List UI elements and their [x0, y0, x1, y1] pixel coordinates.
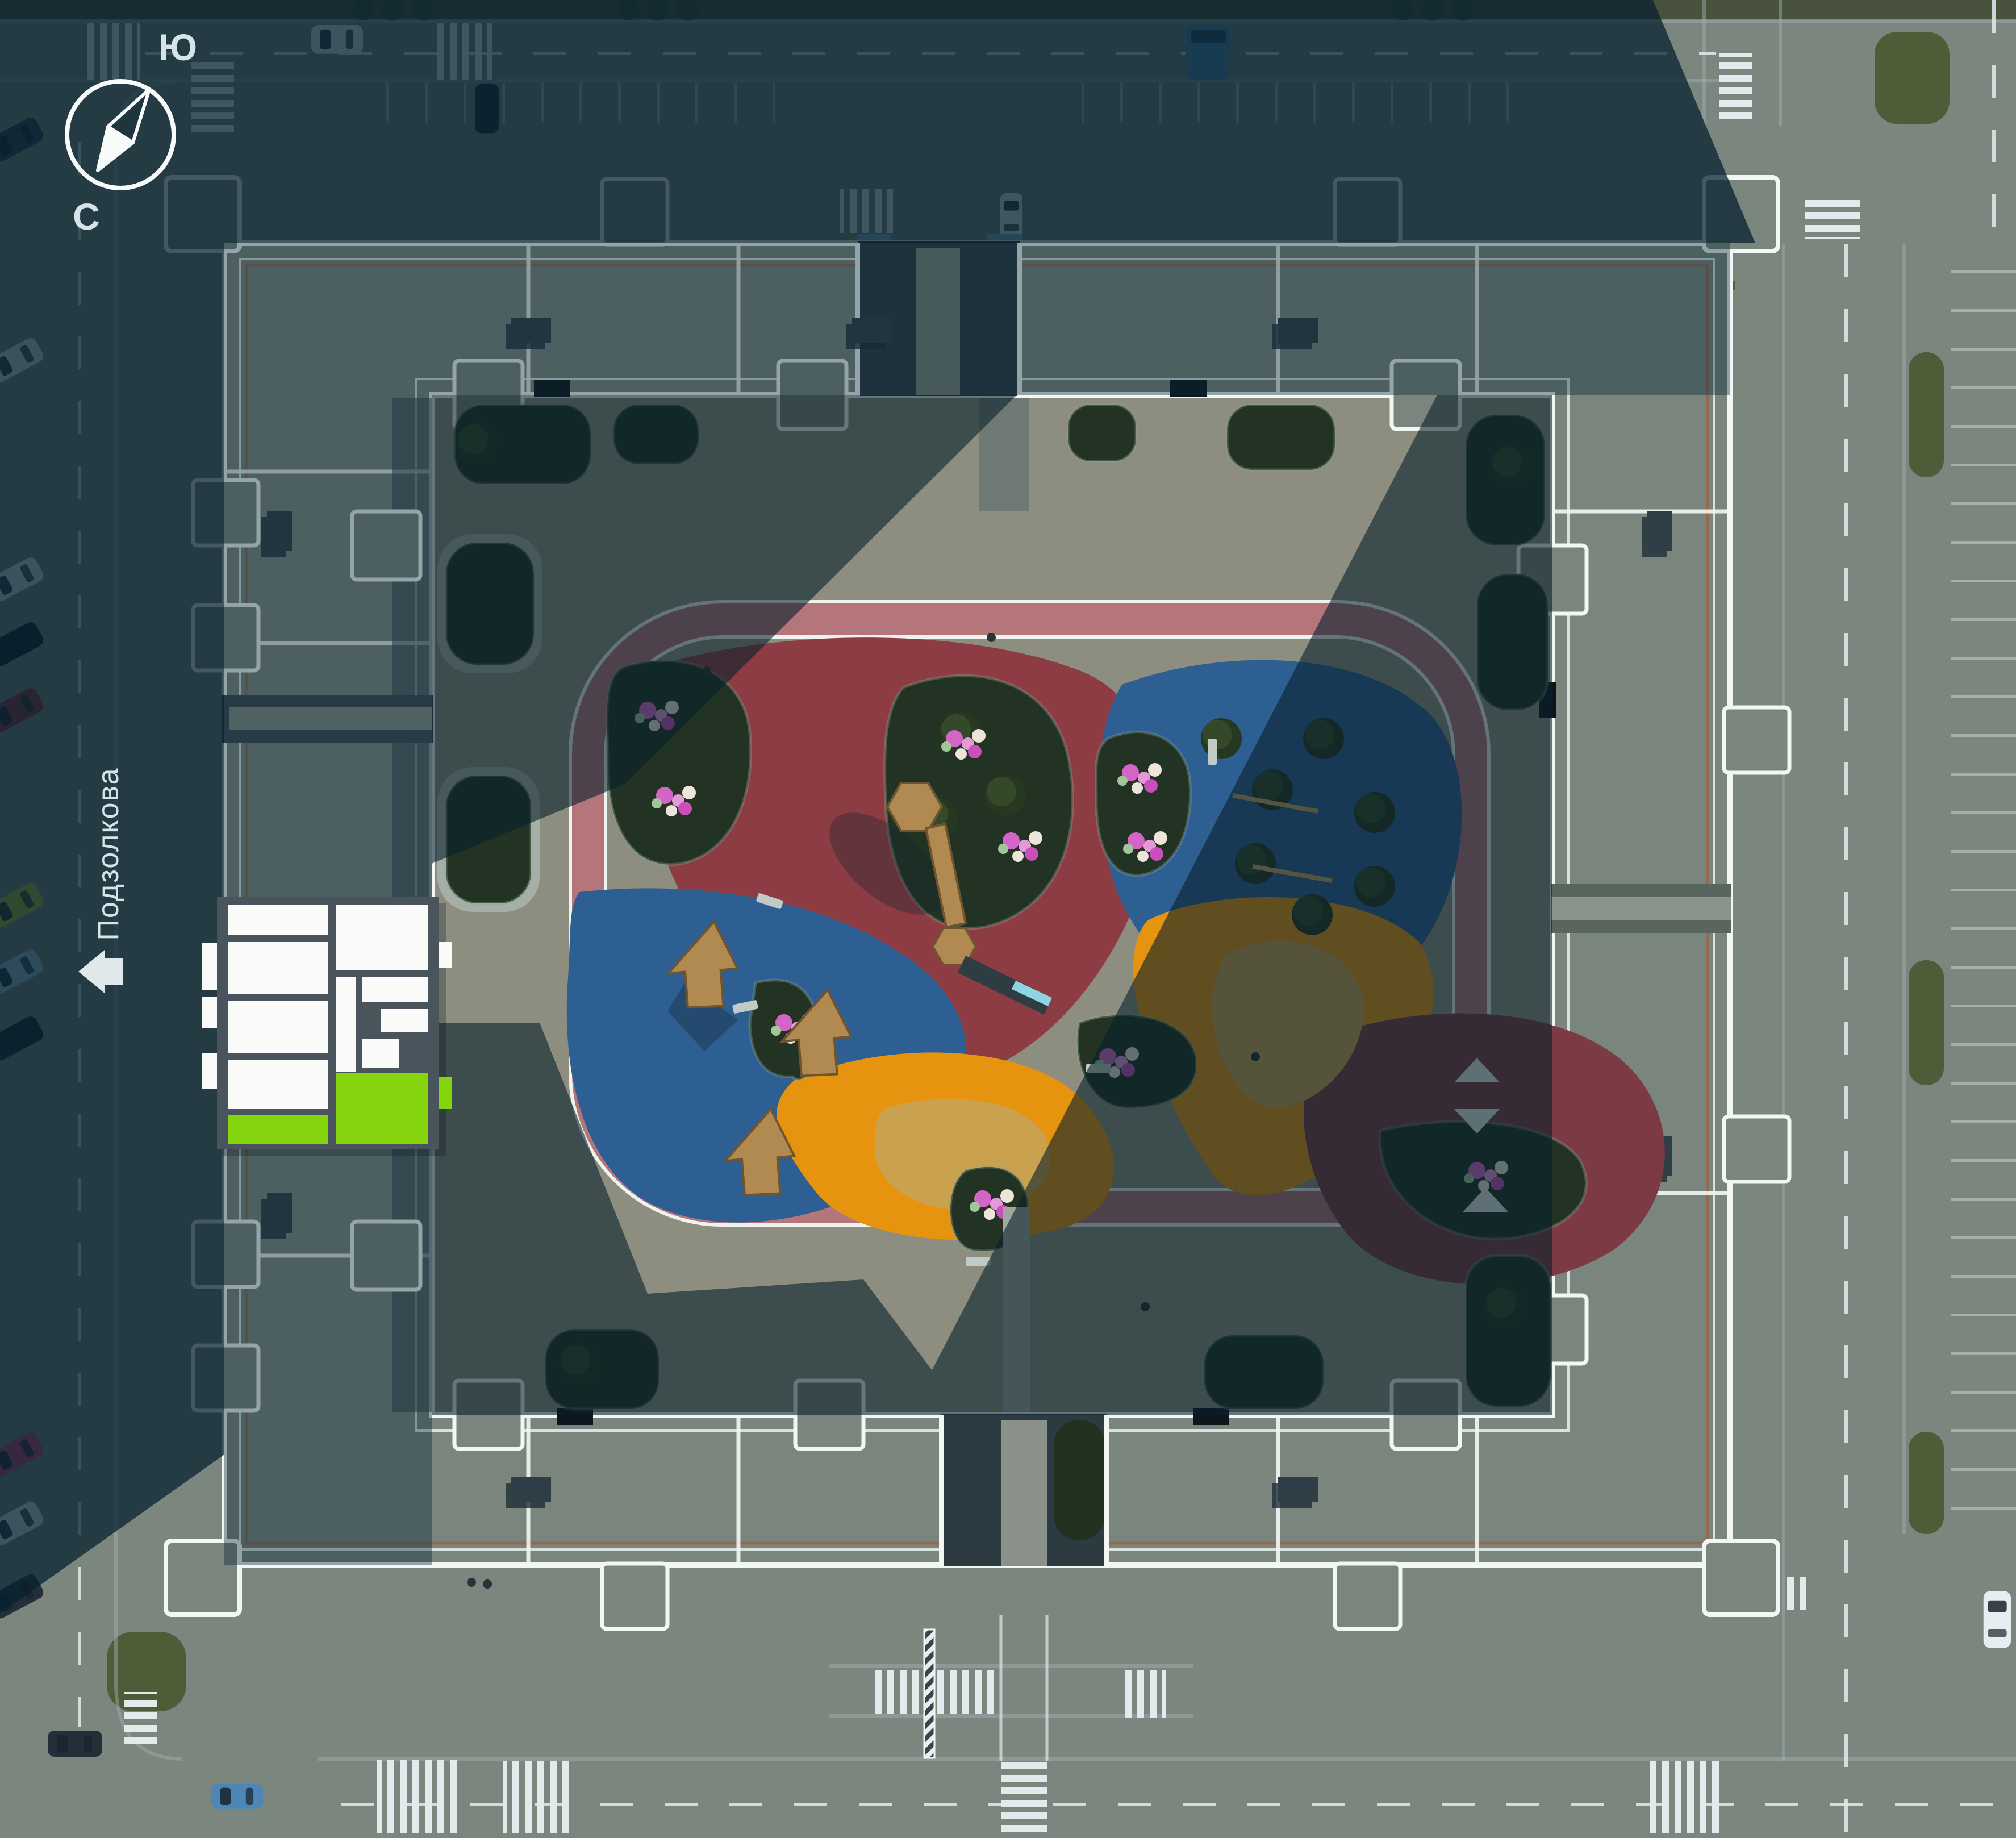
street-name: Подзолкова	[92, 767, 125, 940]
verge-bed	[1875, 32, 1950, 124]
verge-bed	[1909, 960, 1944, 1085]
verge-bed	[1909, 1432, 1944, 1534]
floor-plan-overlay[interactable]	[202, 897, 452, 1156]
balcony	[202, 943, 217, 990]
verge-bed	[1909, 352, 1944, 477]
compass-label-south: Ю	[158, 26, 197, 68]
aerial-masterplan: Ю С Подзолкова	[0, 0, 2016, 1838]
balcony	[439, 942, 452, 968]
balcony	[202, 997, 217, 1028]
parking-bays-right	[1951, 267, 2016, 1534]
balcony	[202, 1053, 217, 1089]
compass-label-north: С	[73, 195, 100, 237]
striped-barrier-post	[924, 1629, 934, 1758]
